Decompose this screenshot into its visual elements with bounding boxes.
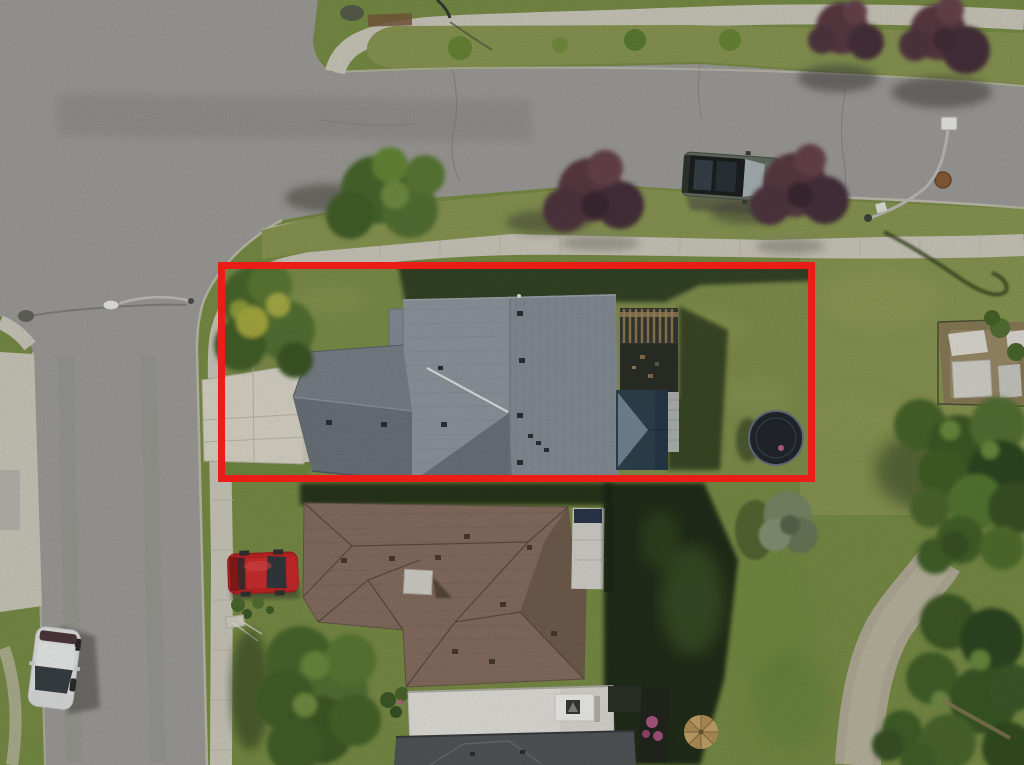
aerial-photo (0, 0, 1024, 765)
photo-grain (0, 0, 1024, 765)
